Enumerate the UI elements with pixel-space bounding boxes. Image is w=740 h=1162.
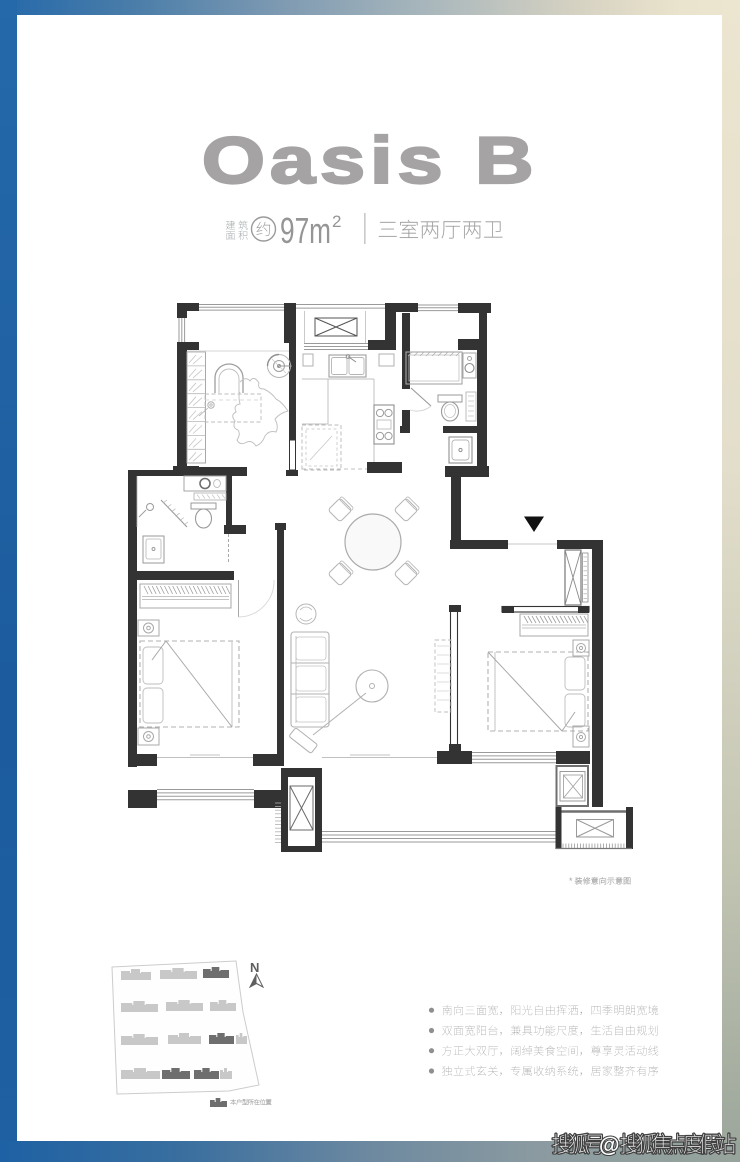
svg-text:97m: 97m	[280, 210, 331, 251]
svg-text:*: *	[569, 876, 573, 886]
svg-text:2: 2	[332, 212, 341, 231]
svg-text:N: N	[250, 960, 259, 975]
svg-text:@: @	[599, 1134, 619, 1157]
